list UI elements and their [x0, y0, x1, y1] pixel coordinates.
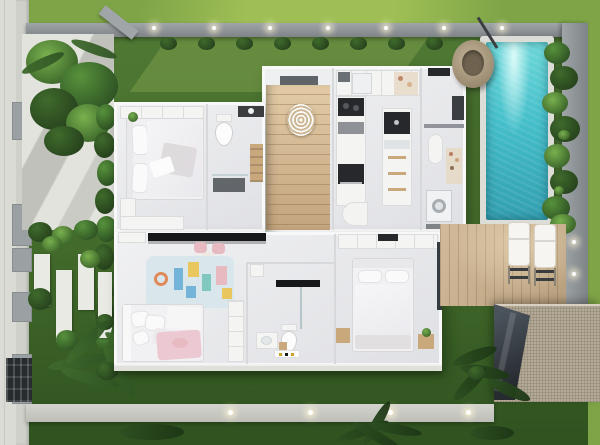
oven-handle [340, 182, 362, 184]
rug-block-pink [216, 266, 227, 285]
lounger-rail [508, 266, 510, 284]
poolside-bush-accent [558, 130, 570, 140]
rug-ring-toy [154, 272, 168, 286]
basin [261, 336, 272, 345]
wall-shrub [236, 37, 253, 50]
pantry-shelf [394, 72, 418, 95]
wall-shrub [426, 37, 443, 50]
sun-lounger [534, 224, 556, 286]
bath-vanity [256, 332, 278, 349]
wall-shrub [388, 37, 405, 50]
nightstand-plant [422, 328, 431, 337]
wall-shrub [350, 37, 367, 50]
wall-uplight [268, 26, 272, 30]
counter-rail [424, 124, 464, 128]
nightstand-left [336, 328, 350, 343]
wall-bedroom-ensuite [206, 104, 208, 230]
oven [338, 164, 364, 184]
toilet-tank [281, 324, 297, 331]
plant-pot [128, 112, 138, 122]
play-rug [146, 256, 234, 308]
master-bed [352, 258, 414, 352]
sideboard [118, 232, 146, 243]
lounger-cushion [508, 222, 530, 266]
mat-dot [291, 353, 294, 356]
hedge-row [94, 132, 115, 158]
washer-door [432, 199, 446, 213]
fridge [352, 73, 372, 94]
faucet [394, 120, 399, 125]
utility-dark-unit [428, 68, 450, 76]
pillow [131, 329, 151, 348]
hanging-egg-chair [452, 40, 494, 88]
closet-l [120, 216, 184, 230]
wall-kids-bath [246, 262, 248, 364]
bottle [455, 158, 459, 162]
dish-rack [384, 140, 410, 149]
utility-steel-unit [452, 96, 464, 120]
palm-cluster-top-left [44, 126, 84, 156]
wall-uplight [572, 240, 576, 244]
hedge-row [95, 188, 115, 214]
lounger-rail [534, 268, 536, 286]
mat-dot [279, 353, 282, 356]
wall-uplight [500, 26, 504, 30]
sidewalk-joint-line [4, 0, 5, 445]
wall-uplight [572, 272, 576, 276]
round-table [342, 202, 368, 226]
drawer-handle [388, 156, 406, 159]
wall-bath-master [334, 234, 336, 364]
ladder-shelf [250, 144, 263, 182]
pillow [358, 270, 382, 283]
white-sheet [166, 306, 201, 330]
kids-chair [212, 243, 225, 254]
rug-block-yellow [188, 262, 199, 277]
toilet-tank [216, 114, 232, 122]
headboard [353, 259, 413, 268]
rug-block-blue2 [186, 286, 196, 298]
poolside-bush [550, 66, 578, 90]
mat-dot [285, 353, 288, 356]
bottle-shelf [446, 148, 462, 184]
console-shadow [148, 241, 266, 244]
rain-shower-bar [276, 280, 320, 287]
sun-lounger [508, 222, 530, 284]
rug-block-yellow2 [222, 288, 232, 299]
pillow [385, 270, 409, 283]
bottle [449, 152, 453, 156]
rug-block-teal [202, 274, 211, 291]
media-console [148, 233, 266, 241]
range-hood [338, 72, 350, 82]
floor-cushion [172, 338, 188, 348]
capsule-table [428, 134, 443, 164]
rear-path [26, 404, 494, 422]
wall-shrub [198, 37, 215, 50]
garden-frond-core [468, 366, 486, 380]
grass-tuft [120, 424, 184, 440]
wall-uplight [442, 26, 446, 30]
round-bush [28, 288, 52, 310]
lounger-frame [510, 268, 528, 271]
bath-shelf-box [250, 264, 264, 277]
wall-kitchen-laundry [420, 68, 422, 230]
washing-machine [426, 190, 452, 222]
lounger-seam [509, 238, 529, 240]
grass-tuft [470, 426, 514, 440]
wall-shrub [312, 37, 329, 50]
lounger-frame [536, 278, 554, 281]
foot-throw [355, 335, 411, 349]
wall-stairs-kitchen [332, 68, 334, 230]
path-uplight [228, 410, 233, 415]
shrub-row [42, 236, 62, 252]
kids-cabinet [228, 300, 244, 362]
floor-plan-render [0, 0, 600, 445]
driveway-gate [6, 358, 32, 402]
bed-bedroom1 [126, 118, 204, 200]
drawer-handle [388, 188, 406, 191]
poolside-bush [542, 92, 568, 114]
wardrobe-dark-unit [378, 234, 398, 241]
lounger-seam [535, 240, 555, 242]
burner [353, 105, 359, 111]
jar [398, 76, 403, 81]
wall-pillar [12, 248, 32, 272]
terrace-ledge [114, 366, 442, 371]
spiral-pendant-light [287, 104, 315, 136]
poolside-bush [544, 42, 570, 64]
shrub-row [74, 220, 98, 240]
wall-uplight [384, 26, 388, 30]
rug-block-blue [174, 268, 183, 290]
wall-shrub [160, 37, 177, 50]
poolside-bush [544, 144, 570, 168]
duvet [355, 285, 411, 335]
poolside-bush-accent [554, 186, 564, 195]
wall-uplight [212, 26, 216, 30]
wall-uplight [326, 26, 330, 30]
shower-mat [213, 178, 245, 192]
bottle [450, 166, 454, 170]
swimming-pool [486, 42, 548, 220]
path-uplight [466, 410, 471, 415]
entry-door-lintel [280, 76, 318, 85]
shower-glass-screen [300, 287, 302, 329]
jar [407, 82, 412, 87]
lounger-rail [528, 266, 530, 284]
egg-chair-seat [462, 50, 484, 76]
path-uplight [308, 410, 313, 415]
wall-shrub [274, 37, 291, 50]
lounger-frame [510, 276, 528, 279]
wall-uplight [152, 26, 156, 30]
kids-bed [122, 304, 204, 362]
counter-appliance [338, 122, 364, 134]
hedge-row [96, 104, 116, 130]
lounger-frame [536, 270, 554, 273]
round-bush [80, 250, 100, 268]
cooktop [338, 98, 364, 116]
burner [343, 103, 349, 109]
bath-mat [274, 350, 300, 358]
shower-glass [212, 174, 248, 176]
path-uplight [388, 410, 393, 415]
vanity-sink [248, 108, 254, 114]
lounger-cushion [534, 224, 556, 268]
lounger-rail [554, 268, 556, 286]
drawer-handle [388, 172, 406, 175]
bed-backboard [123, 305, 131, 361]
